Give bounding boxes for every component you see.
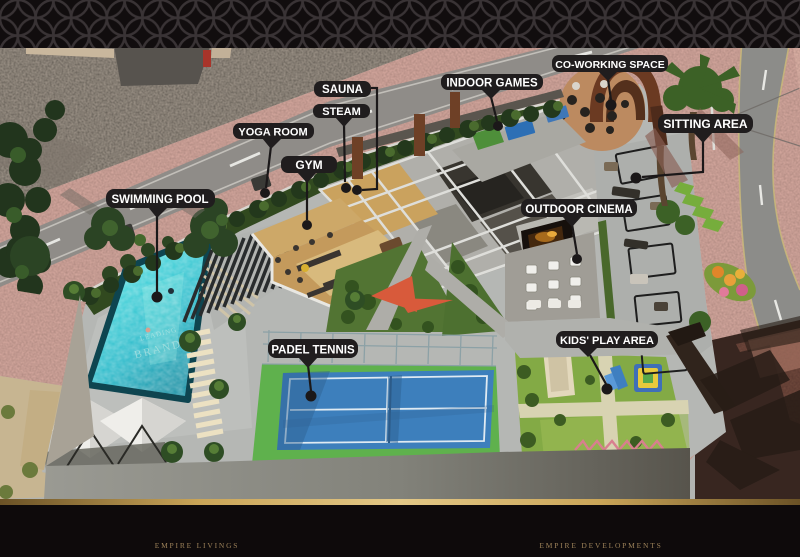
svg-text:SITTING AREA: SITTING AREA xyxy=(663,117,748,131)
svg-text:OUTDOOR CINEMA: OUTDOOR CINEMA xyxy=(525,204,632,216)
svg-text:GYM: GYM xyxy=(295,158,322,172)
svg-text:INDOOR GAMES: INDOOR GAMES xyxy=(446,78,538,90)
svg-text:PADEL TENNIS: PADEL TENNIS xyxy=(271,345,355,357)
svg-text:EMPIRE LIVINGS: EMPIRE LIVINGS xyxy=(155,541,240,550)
svg-text:CO-WORKING SPACE: CO-WORKING SPACE xyxy=(555,59,664,71)
svg-text:STEAM: STEAM xyxy=(322,106,361,118)
svg-text:SAUNA: SAUNA xyxy=(322,84,363,96)
svg-text:YOGA ROOM: YOGA ROOM xyxy=(238,127,307,139)
svg-text:SWIMMING POOL: SWIMMING POOL xyxy=(111,194,208,206)
svg-text:KIDS' PLAY AREA: KIDS' PLAY AREA xyxy=(560,335,654,347)
svg-text:EMPIRE DEVELOPMENTS: EMPIRE DEVELOPMENTS xyxy=(539,541,662,550)
